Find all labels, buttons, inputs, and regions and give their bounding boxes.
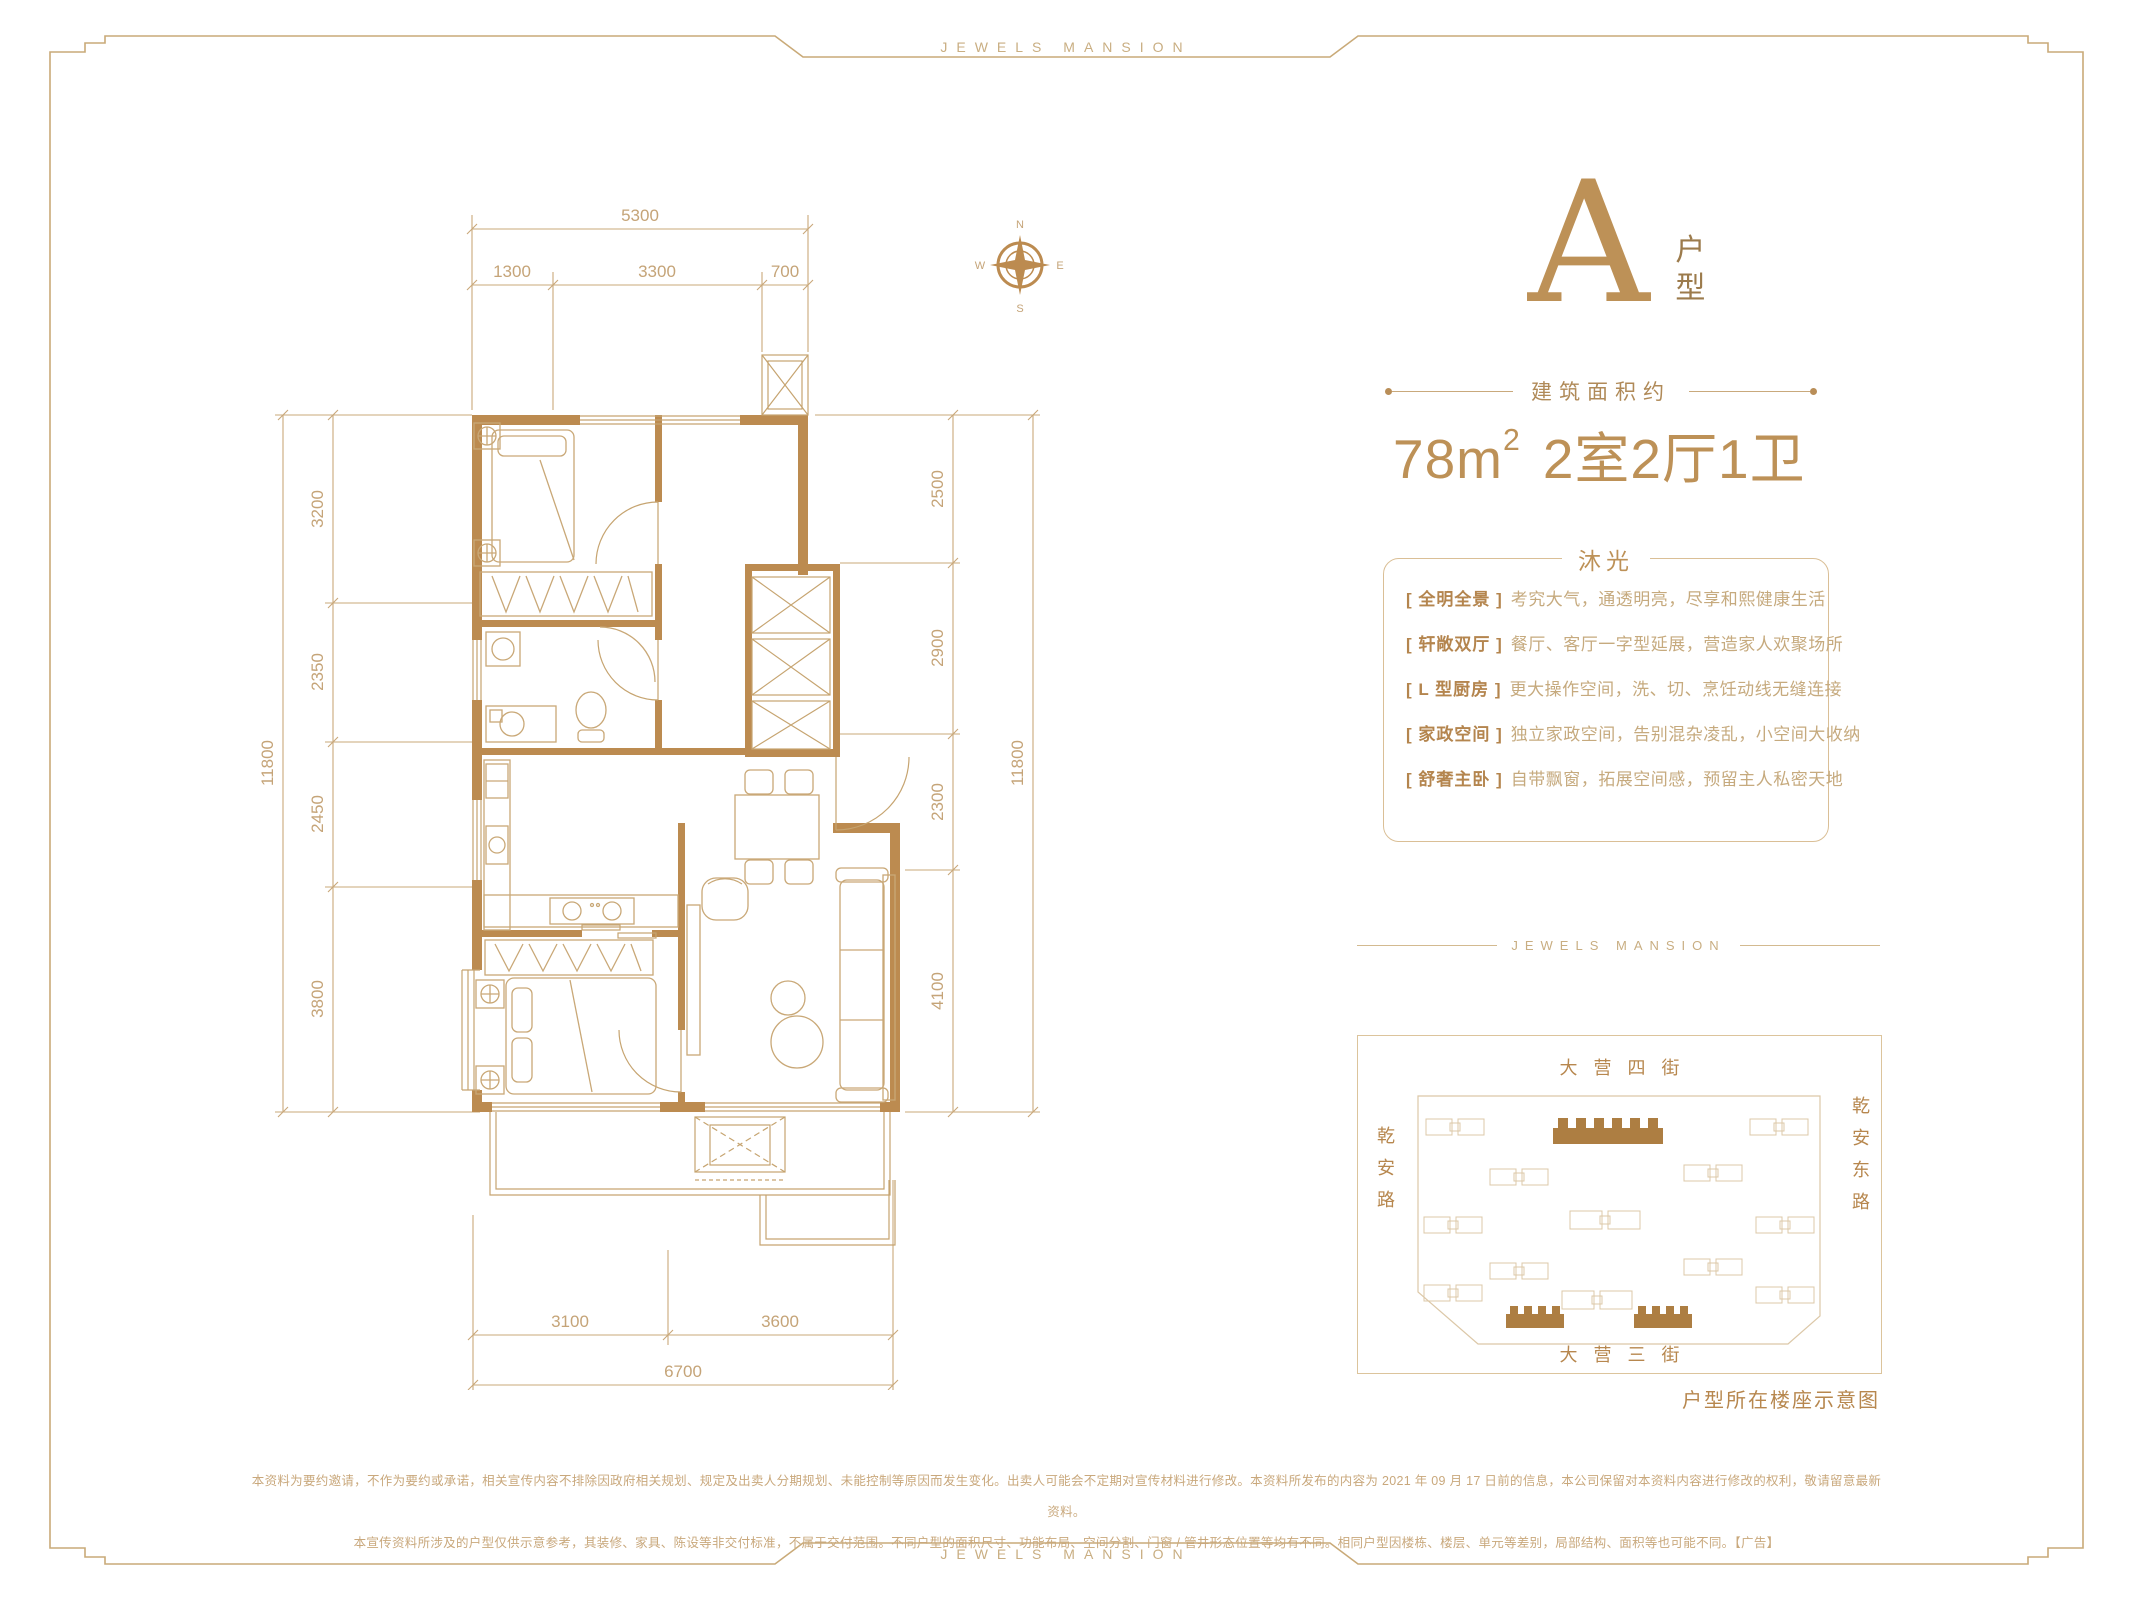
divider-line-right [1689,391,1810,392]
unit-type-char-1: 户 [1675,232,1705,270]
dim-bottom-total: 6700 [664,1362,702,1381]
dim-left-seg2: 2350 [308,653,327,691]
unit-spec: 78m22室2厅1卫 [1393,414,1823,494]
dim-top-seg3: 700 [771,262,799,281]
feature-item: [ 轩敞双厅 ] 餐厅、客厅一字型延展，营造家人欢聚场所 [1406,630,1806,655]
dim-left-seg4: 3800 [308,980,327,1018]
feature-desc: 餐厅、客厅一字型延展，营造家人欢聚场所 [1511,630,1844,655]
dim-right-total: 11800 [1008,740,1027,786]
dim-right-seg1: 2500 [928,470,947,508]
unit-header: A 户 型 [1528,168,1858,318]
feature-desc: 独立家政空间，告别混杂凌乱，小空间大收纳 [1511,720,1861,745]
divider-line-left [1357,945,1497,946]
disclaimer: 本资料为要约邀请，不作为要约或承诺，相关宣传内容不排除因政府相关规划、规定及出卖… [250,1466,1883,1559]
brand-top: JEWELS MANSION [940,39,1191,55]
area-sup: 2 [1503,424,1521,457]
feature-item: [ L 型厨房 ] 更大操作空间，洗、切、烹饪动线无缝连接 [1406,675,1806,700]
dimension-lines [275,215,1040,1390]
feature-item: [ 舒奢主卧 ] 自带飘窗，拓展空间感，预留主人私密天地 [1406,765,1806,790]
feature-tag: [ 轩敞双厅 ] [1406,630,1503,655]
dim-right-seg2: 2900 [928,629,947,667]
street-bottom-label: 大营三街 [1358,1341,1881,1367]
features-title: 沐光 [1562,542,1650,576]
unit-letter: A [1528,168,1649,318]
unit-type-label: 户 型 [1675,232,1705,308]
divider-dot-right [1810,388,1817,395]
siteplan-divider-label: JEWELS MANSION [1497,938,1739,953]
street-top-label: 大营四街 [1358,1054,1881,1080]
feature-item: [ 全明全景 ] 考究大气，通透明亮，尽享和熙健康生活 [1406,585,1806,610]
dim-top-total: 5300 [621,206,659,225]
feature-tag: [ 舒奢主卧 ] [1406,765,1503,790]
windows [462,416,880,1111]
compass-e: E [1056,260,1063,272]
feature-tag: [ 全明全景 ] [1406,585,1503,610]
compass-s: S [1016,303,1023,315]
compass-icon: N S W E [975,219,1064,315]
feature-desc: 自带飘窗，拓展空间感，预留主人私密天地 [1511,765,1844,790]
dim-right-seg3: 2300 [928,783,947,821]
feature-tag: [ 家政空间 ] [1406,720,1503,745]
area-value: 78m [1393,428,1503,490]
road-right-label: 乾安东路 [1847,1096,1873,1224]
siteplan-map [1358,1036,1881,1373]
unit-type-char-2: 型 [1675,270,1705,308]
siteplan-box: 大营四街 大营三街 乾安路 乾安东路 [1357,1035,1882,1374]
feature-item: [ 家政空间 ] 独立家政空间，告别混杂凌乱，小空间大收纳 [1406,720,1806,745]
dim-left-total: 11800 [258,740,277,786]
divider-dot-left [1385,388,1392,395]
features-list: [ 全明全景 ] 考究大气，通透明亮，尽享和熙健康生活 [ 轩敞双厅 ] 餐厅、… [1384,585,1828,790]
area-label: 建筑面积约 [1513,376,1689,406]
area-divider: 建筑面积约 [1385,376,1817,406]
floorplan-drawing: 5300 1300 3300 700 11800 3200 2350 2450 … [240,140,1110,1390]
road-left-label: 乾安路 [1372,1126,1398,1222]
disclaimer-line-1: 本资料为要约邀请，不作为要约或承诺，相关宣传内容不排除因政府相关规划、规定及出卖… [250,1466,1883,1528]
balconies [490,1112,895,1245]
feature-desc: 考究大气，通透明亮，尽享和熙健康生活 [1511,585,1826,610]
feature-desc: 更大操作空间，洗、切、烹饪动线无缝连接 [1510,675,1843,700]
divider-line-left [1392,391,1513,392]
dimension-labels: 5300 1300 3300 700 11800 3200 2350 2450 … [258,206,1027,1381]
dim-left-seg1: 3200 [308,490,327,528]
dim-right-seg4: 4100 [928,972,947,1010]
compass-w: W [975,260,986,272]
features-box: 沐光 [ 全明全景 ] 考究大气，通透明亮，尽享和熙健康生活 [ 轩敞双厅 ] … [1383,558,1829,842]
layout-text: 2室2厅1卫 [1543,428,1806,490]
dim-bottom-seg1: 3100 [551,1312,589,1331]
dim-left-seg3: 2450 [308,795,327,833]
dim-bottom-seg2: 3600 [761,1312,799,1331]
service-shafts [752,355,830,749]
dim-top-seg2: 3300 [638,262,676,281]
disclaimer-line-2: 本宣传资料所涉及的户型仅供示意参考，其装修、家具、陈设等非交付标准，不属于交付范… [250,1528,1883,1559]
siteplan-divider: JEWELS MANSION [1357,938,1880,953]
dim-top-seg1: 1300 [493,262,531,281]
feature-tag: [ L 型厨房 ] [1406,675,1502,700]
divider-line-right [1740,945,1880,946]
siteplan-buildings-outline [1424,1119,1814,1309]
siteplan-caption: 户型所在楼座示意图 [1555,1384,1880,1413]
compass-n: N [1016,219,1024,231]
